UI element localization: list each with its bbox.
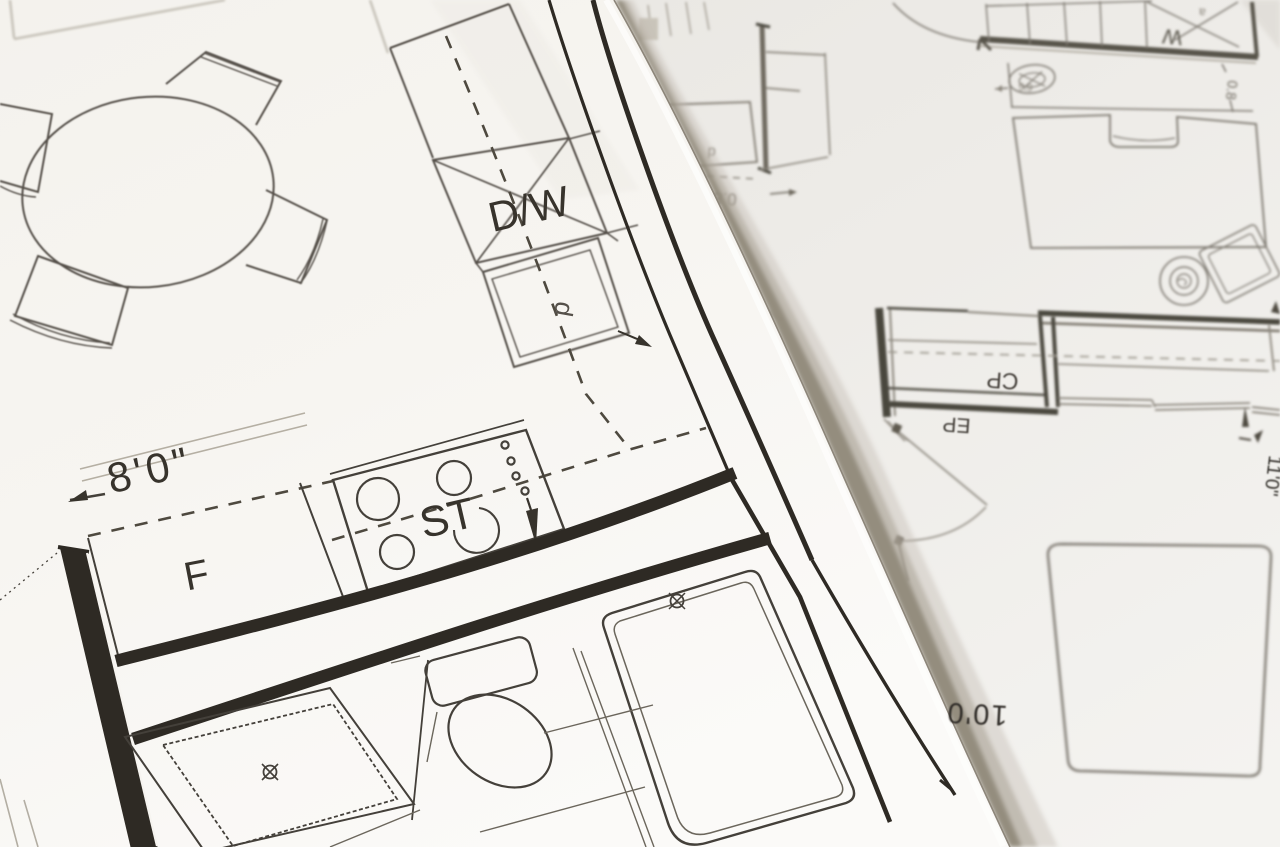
svg-text:10'0: 10'0 (945, 696, 1009, 731)
svg-text:W: W (1161, 24, 1183, 49)
svg-text:CP: CP (986, 367, 1020, 395)
svg-text:0.8: 0.8 (1223, 80, 1241, 101)
svg-text:EP: EP (942, 412, 972, 437)
svg-text:6'6: 6'6 (1018, 80, 1033, 93)
